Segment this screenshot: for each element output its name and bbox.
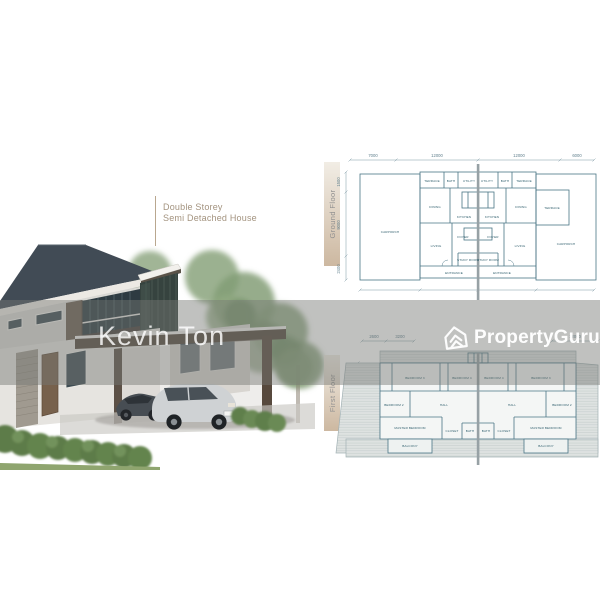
room-label: UTILITY — [463, 179, 475, 183]
party-wall — [477, 164, 480, 300]
propertyguru-logo: PropertyGuru — [442, 324, 600, 351]
dim-label: 12000 — [513, 153, 525, 158]
dim-label: 12000 — [431, 153, 443, 158]
room-label: STUDY ROOM — [477, 258, 499, 262]
propertyguru-wordmark: PropertyGuru — [474, 327, 600, 349]
dim-label: 2400 — [336, 264, 341, 274]
annotation-line2: Semi Detached House — [163, 213, 257, 224]
room-label: BATH — [466, 429, 474, 433]
room-label: BATH — [447, 179, 455, 183]
dim-label: 9000 — [336, 220, 341, 230]
room-label: BEDROOM 2 — [384, 403, 404, 407]
dim-label: 7000 — [368, 153, 378, 158]
room-label: KITCHEN — [457, 215, 471, 219]
propertyguru-logo-icon — [442, 324, 469, 351]
room-label: LIVING — [515, 244, 526, 248]
room-label: BALCONY — [538, 444, 554, 448]
room-label: STUDY ROOM — [457, 258, 479, 262]
room-label: MASTER BEDROOM — [530, 426, 561, 430]
room-label: HALL — [508, 403, 516, 407]
room-label: FOYER — [457, 235, 469, 239]
room-label: LIVING — [431, 244, 442, 248]
agent-watermark: Kevin Ton — [98, 321, 225, 352]
room-label: DINING — [515, 205, 527, 209]
room-label: HALL — [440, 403, 448, 407]
ground-floor-plan: Ground Floor 7000 12000 12000 6000 1500 … — [322, 148, 600, 300]
room-label: TERRACE — [544, 206, 559, 210]
room-label: FOYER — [487, 235, 499, 239]
headlight — [228, 403, 235, 407]
room-label: ENTRANCE — [445, 271, 463, 275]
room-label: KITCHEN — [485, 215, 499, 219]
room-label: TERRACE — [516, 179, 531, 183]
room-label: BATH — [482, 429, 490, 433]
room-label: DINING — [429, 205, 441, 209]
room-label: BATH — [501, 179, 509, 183]
room-label: BEDROOM 2 — [552, 403, 572, 407]
dim-label: 1500 — [336, 177, 341, 187]
room-label: BALCONY — [402, 444, 418, 448]
room-label: CARPORCH — [381, 230, 400, 234]
room-label: CARPORCH — [557, 242, 576, 246]
room-label: MASTER BEDROOM — [394, 426, 425, 430]
room-label: UTILITY — [481, 179, 493, 183]
annotation-line1: Double Storey — [163, 202, 257, 213]
room-label: ENTRANCE — [493, 271, 511, 275]
room-label: CLOSET — [446, 429, 459, 433]
ground-floor-title: Ground Floor — [328, 189, 337, 238]
listing-image: Double Storey Semi Detached House Ground… — [0, 0, 600, 600]
room-label: CLOSET — [498, 429, 511, 433]
room-label: TERRACE — [424, 179, 439, 183]
house-type-annotation: Double Storey Semi Detached House — [155, 196, 257, 246]
dim-label: 6000 — [572, 153, 582, 158]
